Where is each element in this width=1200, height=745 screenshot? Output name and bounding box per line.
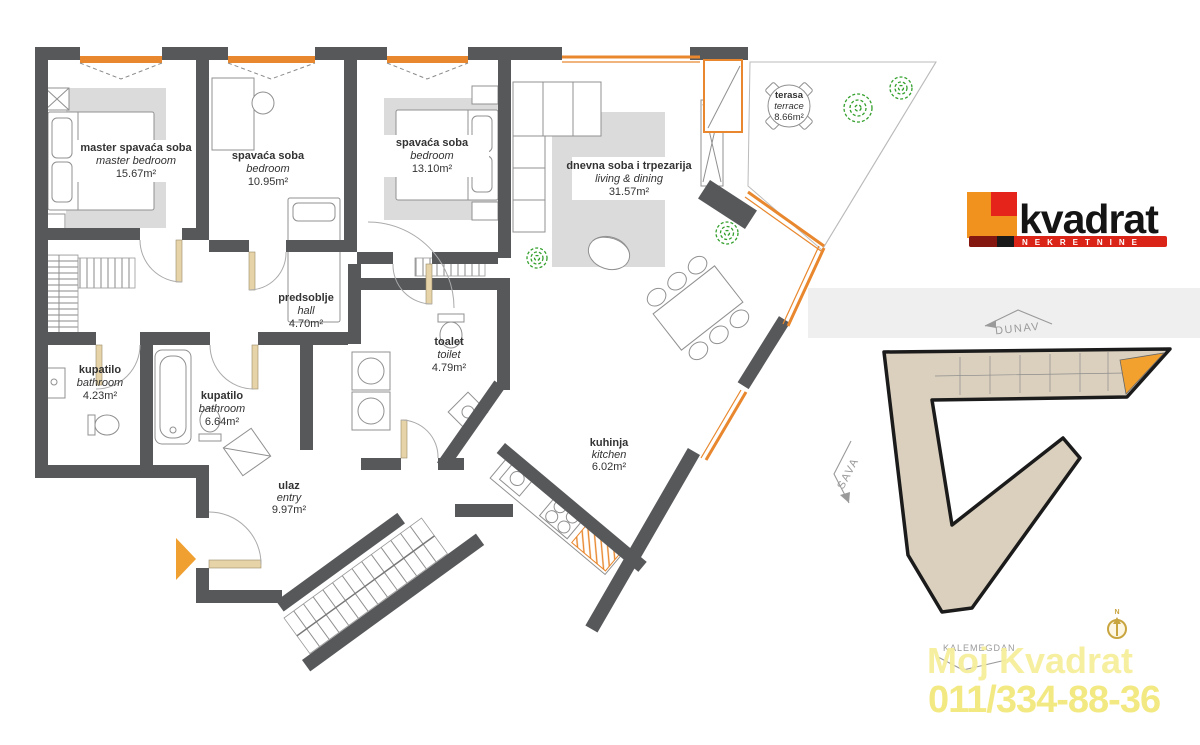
svg-text:master spavaća soba: master spavaća soba [80, 142, 192, 154]
svg-text:13.10m²: 13.10m² [412, 163, 453, 175]
svg-text:kuhinja: kuhinja [590, 437, 629, 449]
svg-text:terrace: terrace [774, 101, 804, 112]
toilet-fixtures [352, 314, 488, 432]
room-label-kitchen: kuhinja kitchen 6.02m² [590, 437, 629, 473]
svg-text:kitchen: kitchen [592, 449, 627, 461]
svg-text:4.79m²: 4.79m² [432, 362, 467, 374]
svg-text:toalet: toalet [434, 336, 464, 348]
closets [40, 255, 485, 333]
svg-text:kupatilo: kupatilo [201, 390, 243, 402]
svg-text:living & dining: living & dining [595, 173, 664, 185]
kvadrat-logo: kvadrat NEKRETNINE [967, 192, 1167, 247]
logo-bar-black-chunk [997, 236, 1014, 247]
room-label-terrace: terasa terrace 8.66m² [774, 90, 804, 123]
svg-text:bedroom: bedroom [410, 150, 453, 162]
entry-arrow-icon [176, 538, 196, 580]
svg-text:spavaća soba: spavaća soba [396, 137, 469, 149]
svg-text:ulaz: ulaz [278, 480, 300, 492]
compass-icon: N [1108, 609, 1126, 638]
watermark: Moj Kvadrat 011/334-88-36 [927, 640, 1160, 721]
svg-text:SAVA: SAVA [835, 456, 861, 491]
room-label-bathroom-1: kupatilo bathroom 4.23m² [77, 364, 123, 402]
svg-text:terasa: terasa [775, 90, 804, 101]
svg-text:predsoblje: predsoblje [278, 292, 334, 304]
svg-text:master bedroom: master bedroom [96, 155, 176, 167]
room-label-bathroom-2: kupatilo bathroom 6.64m² [199, 390, 245, 428]
siteplan: DUNAV SAVA KALEMEGDAN N [834, 310, 1170, 670]
svg-text:8.66m²: 8.66m² [774, 112, 804, 123]
svg-text:hall: hall [297, 305, 315, 317]
svg-text:bathroom: bathroom [199, 403, 245, 415]
highlighted-unit [1120, 353, 1164, 394]
svg-text:Moj Kvadrat: Moj Kvadrat [927, 640, 1133, 681]
svg-text:toilet: toilet [437, 349, 461, 361]
svg-text:bathroom: bathroom [77, 377, 123, 389]
svg-text:6.02m²: 6.02m² [592, 461, 627, 473]
svg-text:9.97m²: 9.97m² [272, 504, 307, 516]
svg-text:bedroom: bedroom [246, 163, 289, 175]
svg-text:N: N [1114, 609, 1119, 616]
svg-text:10.95m²: 10.95m² [248, 176, 289, 188]
logo-tagline: NEKRETNINE [1022, 238, 1144, 247]
logo-bar-dark-cap [969, 236, 999, 247]
floorplan-canvas: master spavaća soba master bedroom 15.67… [0, 0, 1200, 745]
room-label-entry: ulaz entry 9.97m² [272, 480, 307, 516]
room-label-toilet: toalet toilet 4.79m² [432, 336, 467, 374]
living-plant-icon [527, 248, 547, 268]
svg-text:4.23m²: 4.23m² [83, 390, 118, 402]
logo-wordmark: kvadrat [1019, 196, 1159, 242]
room-label-bedroom-2: spavaća soba bedroom 10.95m² [232, 150, 305, 188]
svg-text:dnevna soba i trpezarija: dnevna soba i trpezarija [566, 160, 692, 172]
logo-red-square [991, 192, 1017, 216]
svg-text:4.70m²: 4.70m² [289, 318, 324, 330]
svg-text:6.64m²: 6.64m² [205, 416, 240, 428]
svg-text:15.67m²: 15.67m² [116, 168, 157, 180]
sava-label: SAVA [834, 441, 862, 503]
svg-text:31.57m²: 31.57m² [609, 186, 650, 198]
svg-text:entry: entry [277, 492, 303, 504]
dining-plant-icon [716, 222, 738, 244]
svg-text:spavaća soba: spavaća soba [232, 150, 305, 162]
dining-table [641, 251, 754, 365]
bedroom2-furniture [212, 78, 340, 322]
svg-text:kupatilo: kupatilo [79, 364, 121, 376]
svg-text:011/334-88-36: 011/334-88-36 [928, 679, 1160, 721]
floorplan-page: master spavaća soba master bedroom 15.67… [0, 0, 1200, 745]
